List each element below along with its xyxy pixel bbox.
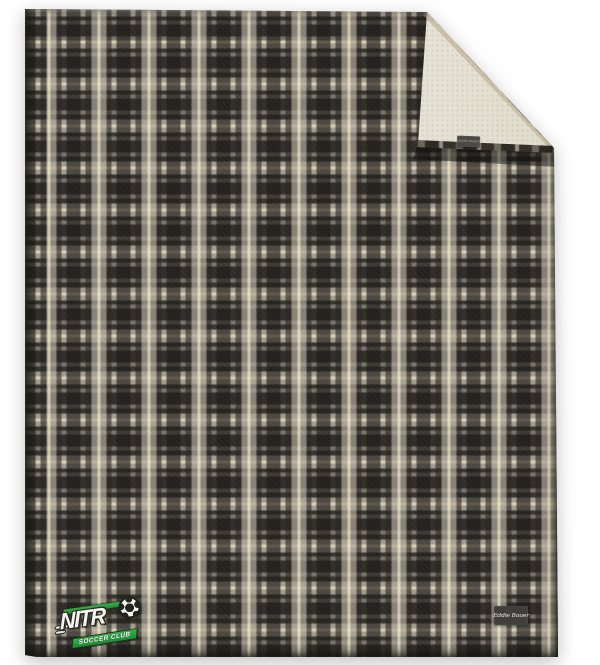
fold-tag-label: EDDIE BAUER [457, 140, 480, 144]
eddie-bauer-label-text: Eddie Bauer [493, 612, 529, 619]
fold-tag: EDDIE BAUER [457, 136, 480, 148]
product-photo: EDDIE BAUER Eddie Bauer NITR SOCCER CLUB [0, 0, 600, 665]
logo-team-text: NITR [59, 603, 105, 634]
logo-banner-text: SOCCER CLUB [78, 631, 130, 646]
soccer-ball-icon [117, 595, 142, 620]
blanket: EDDIE BAUER Eddie Bauer NITR SOCCER CLUB [25, 8, 558, 658]
blanket-front: EDDIE BAUER Eddie Bauer NITR SOCCER CLUB [25, 8, 558, 658]
eddie-bauer-label: Eddie Bauer [494, 606, 528, 625]
